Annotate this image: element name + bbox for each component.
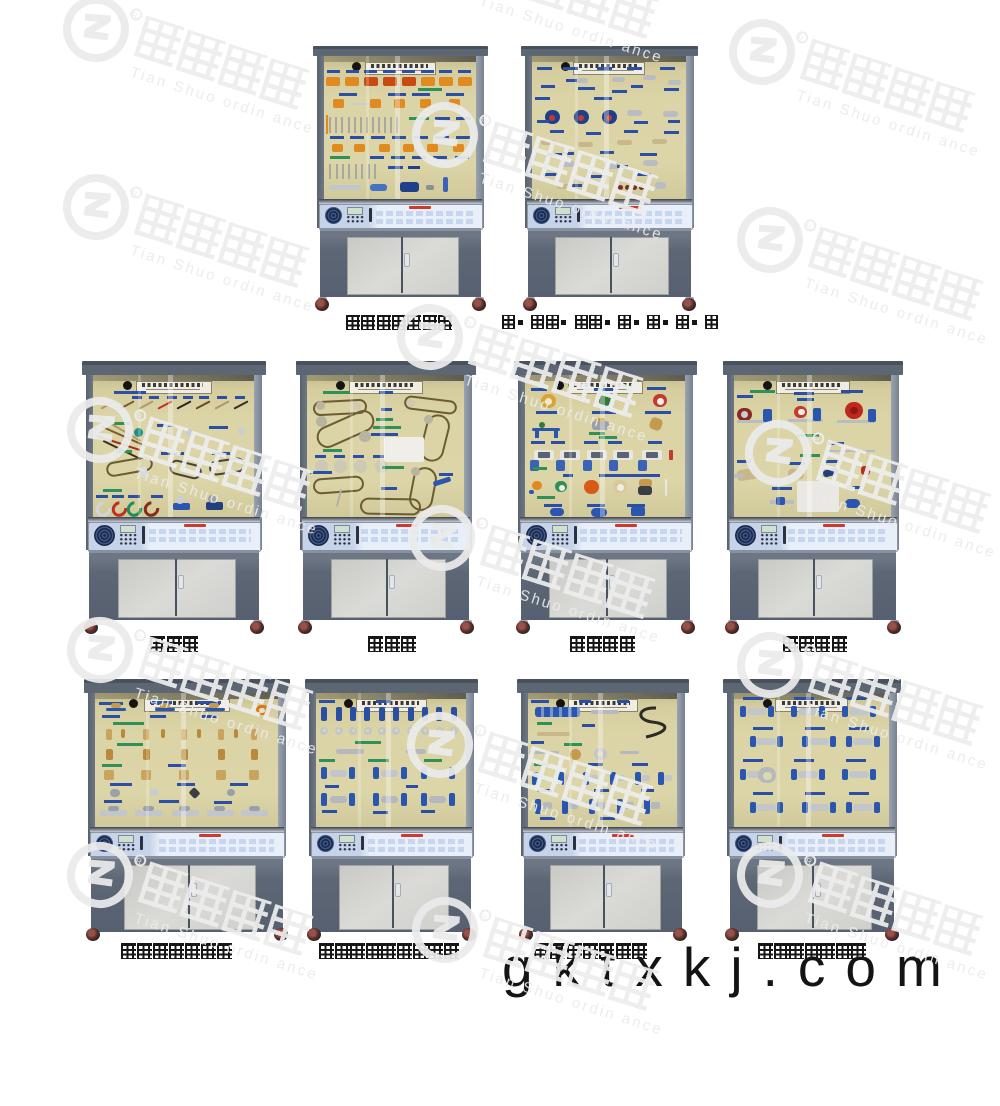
svg-text:R: R bbox=[797, 33, 805, 43]
svg-text:R: R bbox=[480, 911, 488, 921]
svg-text:R: R bbox=[131, 10, 139, 20]
svg-text:R: R bbox=[805, 221, 813, 231]
svg-text:R: R bbox=[465, 318, 473, 328]
svg-text:R: R bbox=[477, 519, 485, 529]
svg-text:R: R bbox=[475, 726, 483, 736]
svg-text:R: R bbox=[131, 188, 139, 198]
